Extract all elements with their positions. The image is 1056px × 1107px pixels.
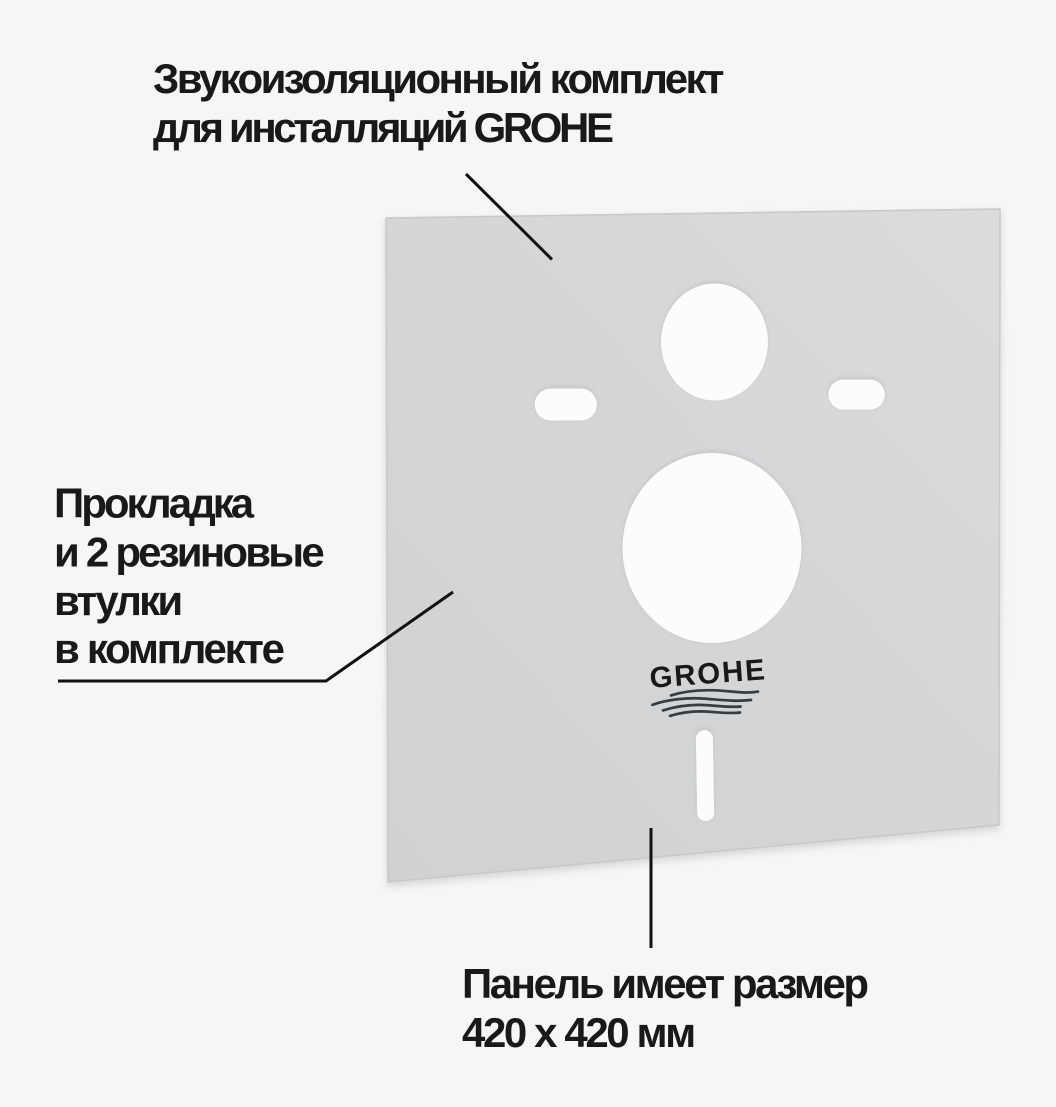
svg-text:в комплекте: в комплекте xyxy=(54,625,284,672)
svg-text:420 x 420 мм: 420 x 420 мм xyxy=(462,1009,694,1056)
svg-text:Панель имеет размер: Панель имеет размер xyxy=(462,960,867,1007)
svg-text:для инсталляций GROHE: для инсталляций GROHE xyxy=(153,104,613,151)
svg-text:Звукоизоляционный комплект: Звукоизоляционный комплект xyxy=(153,55,724,102)
svg-text:втулки: втулки xyxy=(54,577,180,624)
svg-text:и 2 резиновые: и 2 резиновые xyxy=(54,528,323,575)
svg-text:Прокладка: Прокладка xyxy=(54,480,255,527)
